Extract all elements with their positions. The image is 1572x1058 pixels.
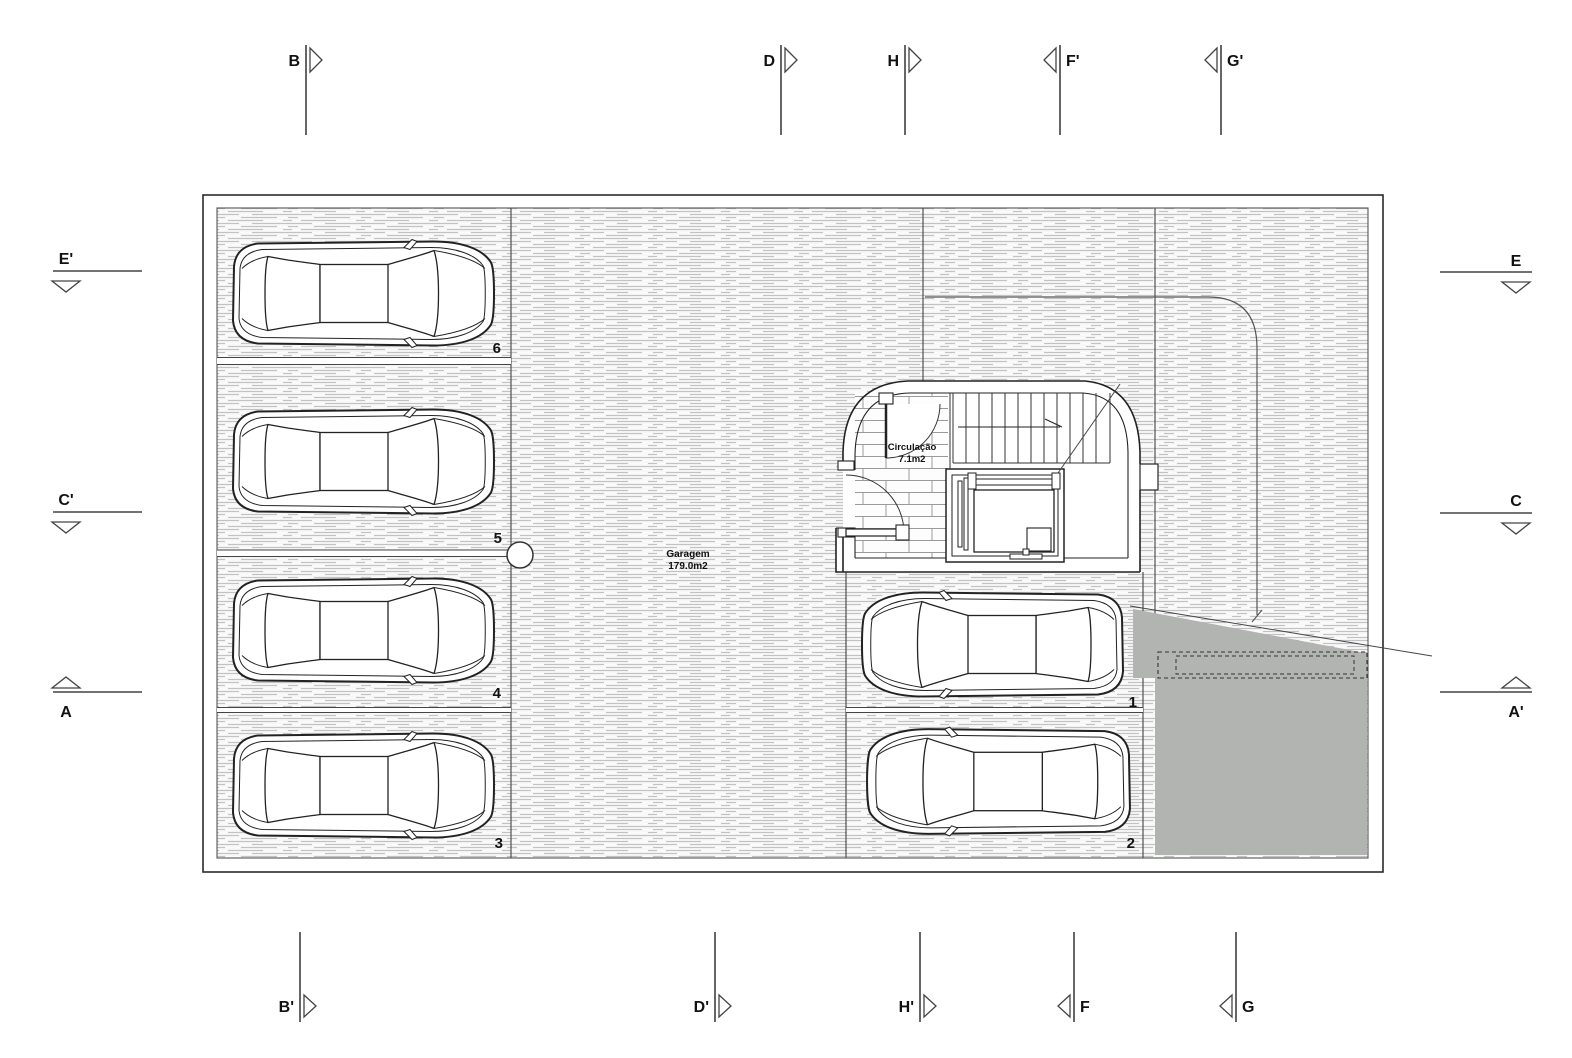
section-arrow-icon <box>1502 677 1530 688</box>
elevator <box>946 469 1064 562</box>
section-arrow-icon <box>1044 48 1056 72</box>
section-arrow-icon <box>52 522 80 533</box>
section-label: G <box>1242 999 1254 1016</box>
section-arrow-icon <box>719 995 731 1017</box>
section-label: F' <box>1066 53 1080 70</box>
section-arrow-icon <box>1205 48 1217 72</box>
floor-plan-canvas: 6 5 4 3 1 2 <box>0 0 1572 1058</box>
section-marker-top-B: B <box>288 45 322 135</box>
car-stall-4 <box>233 577 494 685</box>
stall-number-2: 2 <box>1127 835 1135 852</box>
car-stall-1 <box>862 591 1123 699</box>
stall-number-4: 4 <box>493 685 502 702</box>
stall-number-3: 3 <box>495 835 503 852</box>
car-stall-5 <box>233 408 494 516</box>
section-marker-bottom-G: G <box>1220 932 1254 1022</box>
stall-number-6: 6 <box>493 340 501 357</box>
garage-plan: 6 5 4 3 1 2 <box>203 195 1432 872</box>
elevator-guide-rail <box>958 481 962 547</box>
section-marker-left-C-prime: C' <box>52 492 142 533</box>
section-marker-top-D: D <box>763 45 797 135</box>
section-arrow-icon <box>52 281 80 292</box>
garage-area: 179.0m2 <box>668 561 708 572</box>
stall-number-5: 5 <box>494 530 502 547</box>
stair-core: Circulação 7.1m2 <box>836 381 1158 572</box>
section-label: A' <box>1508 704 1523 721</box>
section-label: H <box>887 53 899 70</box>
section-marker-right-E: E <box>1440 253 1532 293</box>
section-arrow-icon <box>1502 282 1530 293</box>
section-marker-top-H: H <box>887 45 921 135</box>
section-label: F <box>1080 999 1090 1016</box>
structural-column <box>507 542 533 568</box>
section-arrow-icon <box>785 48 797 72</box>
section-label: A <box>60 704 72 721</box>
section-label: G' <box>1227 53 1243 70</box>
circulation-area: 7.1m2 <box>899 454 926 465</box>
section-arrow-icon <box>1220 995 1232 1017</box>
section-marker-bottom-F: F <box>1058 932 1090 1022</box>
section-arrow-icon <box>310 48 322 72</box>
section-arrow-icon <box>52 677 80 688</box>
elevator-counterweight <box>1027 528 1051 551</box>
section-marker-right-A-prime: A' <box>1440 677 1532 721</box>
section-marker-right-C: C <box>1440 493 1532 534</box>
section-marker-left-E-prime: E' <box>52 251 142 292</box>
car-stall-3 <box>233 732 494 840</box>
section-label: D' <box>694 999 709 1016</box>
elevator-buffer-stub <box>1023 549 1029 555</box>
floor-plan-page: 6 5 4 3 1 2 <box>0 0 1572 1058</box>
section-marker-top-G-prime: G' <box>1205 45 1243 135</box>
wall-pilaster <box>1140 464 1158 490</box>
car-stall-6 <box>233 240 494 348</box>
elevator-guide-rail <box>964 478 968 550</box>
car-stall-2 <box>867 727 1130 836</box>
section-label: B <box>288 53 300 70</box>
section-arrow-icon <box>304 995 316 1017</box>
section-label: B' <box>279 999 294 1016</box>
circulation-label: Circulação <box>888 442 937 453</box>
section-marker-bottom-H-prime: H' <box>899 932 936 1022</box>
section-marker-bottom-D-prime: D' <box>694 932 731 1022</box>
section-label: E <box>1511 253 1522 270</box>
section-marker-top-F-prime: F' <box>1044 45 1080 135</box>
section-label: E' <box>59 251 73 268</box>
section-arrow-icon <box>1502 523 1530 534</box>
stall-number-1: 1 <box>1129 694 1137 711</box>
section-marker-left-A: A <box>52 677 142 721</box>
section-label: D <box>763 53 775 70</box>
section-marker-bottom-B-prime: B' <box>279 932 316 1022</box>
garage-label: Garagem <box>666 549 709 560</box>
section-arrow-icon <box>1058 995 1070 1017</box>
section-label: C <box>1510 493 1522 510</box>
section-label: H' <box>899 999 914 1016</box>
section-arrow-icon <box>909 48 921 72</box>
section-arrow-icon <box>924 995 936 1017</box>
section-label: C' <box>58 492 73 509</box>
door-jamb-top <box>838 461 854 470</box>
